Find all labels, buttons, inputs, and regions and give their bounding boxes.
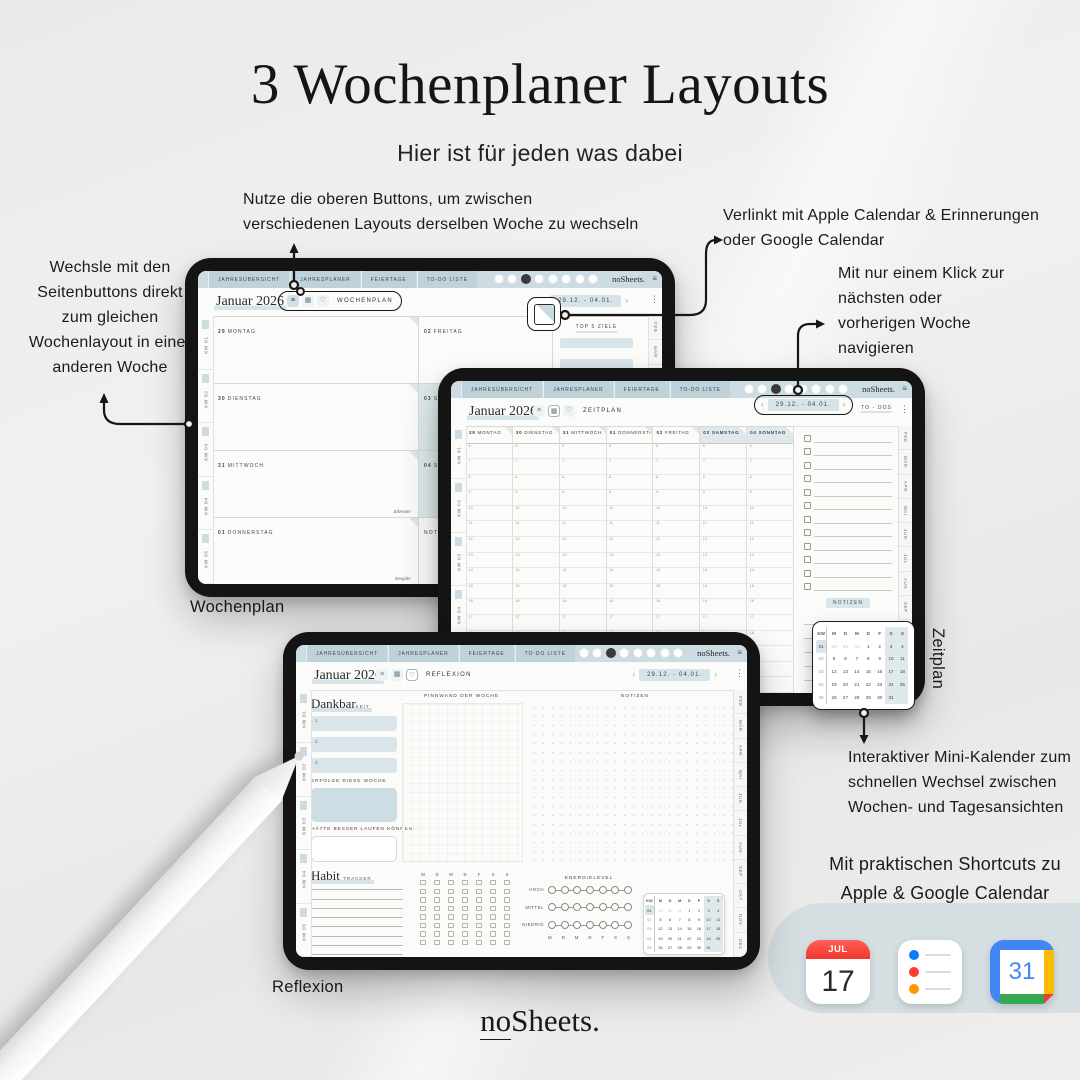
menu-icon[interactable]: ≡ (652, 274, 657, 283)
notes-dotted-area[interactable] (530, 703, 738, 867)
day-cell-mittwoch[interactable]: 31MITTWOCHSilvester (213, 451, 418, 518)
hour-slot[interactable]: 14 (747, 568, 793, 584)
month-title: Januar 2026 (312, 668, 384, 684)
habit-checkbox[interactable] (434, 931, 439, 936)
week-side-tab[interactable]: KW 01 (451, 426, 466, 479)
gratitude-entry-field[interactable]: 2 (311, 737, 397, 752)
hour-slot[interactable]: 10 (747, 506, 793, 522)
hour-slot[interactable]: 10 (653, 506, 699, 522)
hour-slot[interactable]: 12 (560, 537, 606, 553)
toolbar-button[interactable] (588, 274, 598, 284)
toolbar-button[interactable] (673, 648, 683, 658)
habit-checkbox[interactable] (476, 923, 481, 928)
gratitude-entry-field[interactable]: 3 (311, 758, 397, 773)
next-week-icon[interactable]: › (714, 669, 717, 681)
habit-checkbox[interactable] (448, 931, 453, 936)
mini-calendar-popup[interactable]: KWMDMDFSS0129303112340256789101103121314… (812, 621, 915, 710)
hour-slot[interactable]: 14 (466, 568, 512, 584)
checkbox-icon (804, 475, 811, 482)
habit-checkbox[interactable] (504, 897, 509, 902)
caption-zeitplan: Zeitplan (928, 628, 947, 689)
hour-slot[interactable]: 15 (653, 584, 699, 600)
hour-slot[interactable]: 9 (607, 490, 653, 506)
month-side-tab[interactable]: JUL (899, 547, 912, 571)
habit-checkbox[interactable] (490, 880, 495, 885)
habit-checkbox[interactable] (504, 914, 509, 919)
hour-slot[interactable]: 9 (700, 490, 746, 506)
grid-view-icon[interactable]: ▦ (391, 669, 403, 681)
hour-slot[interactable]: 9 (560, 490, 606, 506)
toolbar-button[interactable] (619, 648, 629, 658)
habit-checkbox[interactable] (490, 940, 495, 945)
toolbar-button[interactable] (811, 384, 821, 394)
hour-slot[interactable]: 14 (560, 568, 606, 584)
habit-checkbox[interactable] (462, 880, 467, 885)
energy-row[interactable]: NIEDRIG (518, 916, 632, 934)
menu-icon[interactable]: ≡ (902, 384, 907, 393)
month-side-tab[interactable]: MÄR (649, 340, 662, 364)
habit-checkbox[interactable] (490, 931, 495, 936)
prev-week-icon[interactable]: ‹ (632, 669, 635, 681)
toolbar-button[interactable] (660, 648, 670, 658)
habit-line[interactable] (311, 937, 403, 946)
menu-icon[interactable]: ≡ (737, 648, 742, 657)
hour-slot[interactable]: 13 (560, 553, 606, 569)
next-week-icon[interactable]: › (625, 295, 628, 307)
week-side-tab[interactable]: KW 05 (296, 904, 311, 957)
better-field[interactable] (311, 836, 397, 862)
hour-slot[interactable]: 7 (747, 459, 793, 475)
habit-checkbox[interactable] (504, 940, 509, 945)
habit-checkbox[interactable] (448, 889, 453, 894)
habit-checkbox[interactable] (448, 923, 453, 928)
hour-slot[interactable]: 16 (466, 599, 512, 615)
hour-slot[interactable]: 9 (653, 490, 699, 506)
hour-slot[interactable]: 9 (513, 490, 559, 506)
month-side-tab[interactable]: MAI (734, 763, 747, 787)
month-side-tab[interactable]: AUG (734, 836, 747, 860)
todo-item[interactable] (804, 510, 892, 524)
toolbar-button-active[interactable] (606, 648, 616, 658)
planner-tab[interactable]: TO-DO LISTE (670, 381, 730, 398)
toolbar-button[interactable] (646, 648, 656, 658)
annotation-week-nav: Mit nur einem Klick zur nächsten oder vo… (838, 262, 1068, 362)
habit-line[interactable] (311, 909, 403, 918)
habit-checkbox[interactable] (448, 897, 453, 902)
planner-tab[interactable]: JAHRESÜBERSICHT (306, 645, 387, 662)
annotation-shortcuts: Mit praktischen Shortcuts zu Apple & Goo… (815, 850, 1075, 908)
habit-checkbox[interactable] (462, 897, 467, 902)
habit-checkbox[interactable] (476, 889, 481, 894)
hour-slot[interactable]: 6 (747, 444, 793, 460)
habit-line[interactable] (311, 946, 403, 955)
habit-checkbox[interactable] (490, 889, 495, 894)
hour-slot[interactable]: 6 (653, 444, 699, 460)
month-side-tab[interactable]: JUN (734, 787, 747, 811)
hour-slot[interactable]: 7 (607, 459, 653, 475)
hour-slot[interactable]: 17 (747, 615, 793, 631)
todo-item[interactable] (804, 456, 892, 470)
hour-slot[interactable]: 7 (700, 459, 746, 475)
todo-item[interactable] (804, 483, 892, 497)
toolbar-button[interactable] (579, 648, 589, 658)
toolbar-button[interactable] (784, 384, 794, 394)
hour-slot[interactable]: 13 (466, 553, 512, 569)
holiday-label: Neujahr (395, 576, 411, 581)
month-side-tab[interactable]: DEZ (734, 933, 747, 957)
hour-slot[interactable]: 17 (653, 615, 699, 631)
month-side-tab[interactable]: NOV (734, 908, 747, 932)
hour-slot[interactable]: 6 (513, 444, 559, 460)
week-side-tab[interactable]: KW 03 (451, 533, 466, 586)
hour-slot[interactable]: 11 (607, 521, 653, 537)
habit-line[interactable] (311, 918, 403, 927)
toolbar-buttons (579, 648, 684, 658)
hour-slot[interactable]: 13 (513, 553, 559, 569)
month-side-tab[interactable]: APR (734, 739, 747, 763)
toolbar-button[interactable] (744, 384, 754, 394)
week-side-tab[interactable]: KW 04 (198, 477, 213, 531)
hour-slot[interactable]: 10 (560, 506, 606, 522)
habit-checkbox[interactable] (420, 880, 425, 885)
hour-slot[interactable]: 8 (513, 475, 559, 491)
week-side-tab[interactable]: KW 02 (198, 370, 213, 424)
month-side-tab[interactable]: FEB (734, 690, 747, 714)
habit-checkbox[interactable] (462, 940, 467, 945)
week-side-tab[interactable]: KW 05 (198, 530, 213, 584)
hour-slot[interactable]: 6 (466, 444, 512, 460)
habit-checkbox[interactable] (462, 906, 467, 911)
hour-slot[interactable]: 10 (513, 506, 559, 522)
hour-slot[interactable]: 11 (560, 521, 606, 537)
toolbar-button-active[interactable] (771, 384, 781, 394)
week-navigation-annotated: ‹ 29.12. - 04.01. › (754, 395, 853, 415)
hour-slot[interactable]: 6 (560, 444, 606, 460)
todo-item[interactable] (804, 564, 892, 578)
day-cell-donnerstag[interactable]: 01DONNERSTAGNeujahr (213, 518, 418, 584)
month-side-tab[interactable]: AUG (899, 572, 912, 596)
habit-checkbox[interactable] (434, 897, 439, 902)
hour-slot[interactable]: 8 (747, 475, 793, 491)
list-view-icon[interactable]: ≡ (533, 405, 545, 417)
planner-tab[interactable]: FEIERTAGE (361, 271, 416, 288)
month-side-tab[interactable]: JUN (899, 523, 912, 547)
hour-slot[interactable]: 12 (607, 537, 653, 553)
week-side-tab[interactable]: KW 01 (296, 690, 311, 743)
habit-checkbox[interactable] (476, 940, 481, 945)
todo-item[interactable] (804, 429, 892, 443)
habit-checkbox[interactable] (504, 923, 509, 928)
energy-row[interactable]: HOCH (518, 881, 632, 899)
hour-slot[interactable]: 10 (466, 506, 512, 522)
hour-slot[interactable]: 15 (560, 584, 606, 600)
heart-view-icon[interactable]: ♡ (563, 405, 575, 417)
month-side-tab[interactable]: MÄR (899, 450, 912, 474)
hour-slot[interactable]: 11 (747, 521, 793, 537)
apple-calendar-icon[interactable]: JUL 17 (806, 940, 870, 1004)
month-side-tab[interactable]: APR (899, 475, 912, 499)
month-side-tab[interactable]: FEB (649, 316, 662, 340)
hour-slot[interactable]: 9 (747, 490, 793, 506)
todo-item[interactable] (804, 537, 892, 551)
toolbar-button[interactable] (825, 384, 835, 394)
habit-checkbox[interactable] (420, 914, 425, 919)
hour-slot[interactable]: 17 (607, 615, 653, 631)
habit-checkbox[interactable] (504, 880, 509, 885)
grid-view-icon[interactable]: ▦ (548, 405, 560, 417)
week-side-tab[interactable]: KW 03 (296, 797, 311, 850)
toolbar-button[interactable] (633, 648, 643, 658)
month-side-tab[interactable]: SEP (734, 860, 747, 884)
view-label: ZEITPLAN (583, 408, 622, 414)
habit-checkbox[interactable] (504, 906, 509, 911)
list-view-icon[interactable]: ≡ (287, 295, 299, 307)
mini-calendar[interactable]: KWMDMDFSS0129303112340256789101103121314… (643, 893, 725, 955)
wins-field[interactable] (311, 788, 397, 822)
hour-slot[interactable]: 11 (653, 521, 699, 537)
toolbar-button-active[interactable] (521, 274, 531, 284)
toolbar-buttons (744, 384, 849, 394)
toolbar-button[interactable] (575, 274, 585, 284)
hour-slot[interactable]: 7 (560, 459, 606, 475)
habit-checkbox[interactable] (504, 889, 509, 894)
hour-slot[interactable]: 7 (513, 459, 559, 475)
caption-reflexion: Reflexion (272, 978, 344, 997)
hour-slot[interactable]: 14 (607, 568, 653, 584)
month-side-tab[interactable]: MÄR (734, 714, 747, 738)
energy-weekday-letters: MDMDFSS (546, 934, 632, 940)
habit-checkbox[interactable] (462, 914, 467, 919)
todo-item[interactable] (804, 551, 892, 565)
hour-slot[interactable]: 13 (747, 553, 793, 569)
hour-slot[interactable]: 16 (653, 599, 699, 615)
hour-slot[interactable]: 9 (466, 490, 512, 506)
habit-checkbox[interactable] (448, 914, 453, 919)
month-side-tab[interactable]: JUL (734, 811, 747, 835)
month-side-tab[interactable]: FEB (899, 426, 912, 450)
planner-tab[interactable]: JAHRESÜBERSICHT (208, 271, 289, 288)
toolbar-button[interactable] (548, 274, 558, 284)
planner-tab[interactable]: FEIERTAGE (459, 645, 514, 662)
hour-slot[interactable]: 15 (607, 584, 653, 600)
shortcuts-pill: JUL 17 31 (768, 903, 1080, 1013)
toolbar-button[interactable] (838, 384, 848, 394)
month-side-tab[interactable]: SEP (899, 596, 912, 620)
grid-view-icon[interactable]: ▦ (302, 295, 314, 307)
gratitude-title: DankbarKEIT (311, 696, 372, 712)
view-switcher: ≡ ▦ ♡ ZEITPLAN (533, 405, 622, 417)
checkbox-icon (804, 570, 811, 577)
habit-checkbox[interactable] (420, 940, 425, 945)
month-side-tab[interactable]: OKT (734, 884, 747, 908)
hour-slot[interactable]: 17 (466, 615, 512, 631)
hour-slot[interactable]: 17 (513, 615, 559, 631)
hour-slot[interactable]: 10 (607, 506, 653, 522)
list-view-icon[interactable]: ≡ (376, 669, 388, 681)
hour-slot[interactable]: 16 (607, 599, 653, 615)
weekday-column-left: 29MONTAG 30DIENSTAG 31MITTWOCHSilvester … (213, 317, 419, 584)
planner-tab[interactable]: TO-DO LISTE (515, 645, 575, 662)
hour-slot[interactable]: 14 (513, 568, 559, 584)
planner-brand: noSheets. (862, 384, 895, 394)
hour-slot[interactable]: 16 (560, 599, 606, 615)
habit-checkbox[interactable] (434, 906, 439, 911)
planner-tab[interactable]: JAHRESPLANER (290, 271, 360, 288)
todo-item[interactable] (804, 470, 892, 484)
energy-row[interactable]: MITTEL (518, 899, 632, 917)
hour-slot[interactable]: 11 (700, 521, 746, 537)
habit-checkbox[interactable] (434, 914, 439, 919)
checkbox-icon (804, 489, 811, 496)
hour-slot[interactable]: 15 (700, 584, 746, 600)
todo-item[interactable] (804, 443, 892, 457)
toolbar-button[interactable] (534, 274, 544, 284)
heart-view-icon[interactable]: ♡ (317, 295, 329, 307)
hour-slot[interactable]: 8 (700, 475, 746, 491)
tablet-reflexion: JAHRESÜBERSICHTJAHRESPLANERFEIERTAGETO-D… (283, 632, 760, 970)
habit-checkbox[interactable] (504, 931, 509, 936)
todo-item[interactable] (804, 524, 892, 538)
toolbar-button[interactable] (757, 384, 767, 394)
habit-checkbox[interactable] (434, 923, 439, 928)
calendar-link-icon[interactable] (534, 304, 555, 325)
toolbar-button[interactable] (507, 274, 517, 284)
habit-checkbox[interactable] (462, 889, 467, 894)
energy-level-section: ENERGIELEVEL HOCH MITTEL NIEDRIG (518, 876, 632, 940)
hour-slot[interactable]: 12 (466, 537, 512, 553)
more-icon[interactable]: ⋮ (900, 404, 909, 415)
planner-tab[interactable]: TO-DO LISTE (417, 271, 477, 288)
habit-checkbox[interactable] (476, 880, 481, 885)
hour-slot[interactable]: 13 (607, 553, 653, 569)
prev-week-icon[interactable]: ‹ (761, 399, 764, 411)
hour-slot[interactable]: 8 (466, 475, 512, 491)
hour-slot[interactable]: 8 (560, 475, 606, 491)
hour-slot[interactable]: 8 (607, 475, 653, 491)
goals-label: TOP 5 ZIELE (576, 324, 618, 333)
habit-checkbox[interactable] (420, 931, 425, 936)
month-side-tab[interactable]: MAI (899, 499, 912, 523)
notes-label: NOTIZEN (826, 598, 870, 608)
habit-checkbox[interactable] (490, 923, 495, 928)
hour-slot[interactable]: 15 (747, 584, 793, 600)
week-side-tab[interactable]: KW 02 (451, 479, 466, 532)
habit-checkbox[interactable] (434, 940, 439, 945)
hour-slot[interactable]: 11 (513, 521, 559, 537)
habit-checkbox[interactable] (434, 889, 439, 894)
poster-canvas: 3 Wochenplaner Layouts Hier ist für jede… (0, 0, 1080, 1080)
hour-slot[interactable]: 6 (700, 444, 746, 460)
habit-line[interactable] (311, 927, 403, 936)
day-cell-montag[interactable]: 29MONTAG (213, 317, 418, 384)
hour-slot[interactable]: 13 (653, 553, 699, 569)
more-icon[interactable]: ⋮ (650, 294, 659, 305)
hour-slot[interactable]: 16 (700, 599, 746, 615)
hour-slot[interactable]: 12 (700, 537, 746, 553)
habit-checkbox[interactable] (420, 923, 425, 928)
habit-checkbox[interactable] (420, 889, 425, 894)
planner-tab[interactable]: FEIERTAGE (614, 381, 669, 398)
pinboard-grid[interactable] (402, 703, 523, 862)
week-side-tab[interactable]: KW 03 (198, 423, 213, 477)
habit-checkbox[interactable] (448, 940, 453, 945)
hour-slot[interactable]: 10 (700, 506, 746, 522)
habit-checkbox[interactable] (490, 897, 495, 902)
hour-slot[interactable]: 14 (700, 568, 746, 584)
toolbar-button[interactable] (494, 274, 504, 284)
google-calendar-icon[interactable]: 31 (990, 940, 1054, 1004)
gratitude-entries: 123 (311, 716, 397, 773)
hour-slot[interactable]: 12 (747, 537, 793, 553)
habit-line[interactable] (311, 900, 403, 909)
hour-slot[interactable]: 12 (513, 537, 559, 553)
habit-checkbox[interactable] (476, 906, 481, 911)
checkbox-icon (804, 583, 811, 590)
planner-tab[interactable]: JAHRESPLANER (388, 645, 458, 662)
hour-slot[interactable]: 17 (560, 615, 606, 631)
habit-checkbox[interactable] (448, 906, 453, 911)
hour-slot[interactable]: 15 (466, 584, 512, 600)
hour-slot[interactable]: 14 (653, 568, 699, 584)
hour-slot[interactable]: 15 (513, 584, 559, 600)
habit-line[interactable] (311, 890, 403, 899)
habit-checkbox[interactable] (490, 914, 495, 919)
day-cell-dienstag[interactable]: 30DIENSTAG (213, 384, 418, 451)
toolbar-button[interactable] (798, 384, 808, 394)
habit-checkbox[interactable] (476, 897, 481, 902)
hour-slot[interactable]: 17 (700, 615, 746, 631)
month-side-tabs: FEBMÄRAPRMAIJUNJULAUGSEPOKTNOVDEZ (733, 690, 747, 957)
hour-slot[interactable]: 13 (700, 553, 746, 569)
date-range[interactable]: 29.12. - 04.01. (639, 669, 710, 681)
habit-checkbox[interactable] (420, 906, 425, 911)
date-range[interactable]: 29.12. - 04.01. (768, 399, 839, 411)
todo-item[interactable] (804, 578, 892, 592)
habit-checkbox[interactable] (434, 880, 439, 885)
habit-checkbox[interactable] (490, 906, 495, 911)
hour-slot[interactable]: 6 (607, 444, 653, 460)
hour-slot[interactable]: 7 (653, 459, 699, 475)
planner-tab[interactable]: JAHRESPLANER (543, 381, 613, 398)
hour-slot[interactable]: 7 (466, 459, 512, 475)
toolbar-button[interactable] (561, 274, 571, 284)
more-icon[interactable]: ⋮ (735, 668, 744, 679)
hour-slot[interactable]: 12 (653, 537, 699, 553)
hour-slot[interactable]: 16 (747, 599, 793, 615)
planner-tab[interactable]: JAHRESÜBERSICHT (461, 381, 542, 398)
habit-checkbox[interactable] (420, 897, 425, 902)
week-side-tab[interactable]: KW 01 (198, 316, 213, 370)
hour-slot[interactable]: 16 (513, 599, 559, 615)
todos-column-label: TO - DOS (861, 405, 892, 413)
apple-reminders-icon[interactable] (898, 940, 962, 1004)
heart-view-icon[interactable]: ♡ (406, 669, 418, 681)
habit-checkbox[interactable] (476, 914, 481, 919)
next-week-icon[interactable]: › (843, 399, 846, 411)
hour-slot[interactable]: 8 (653, 475, 699, 491)
habit-checkbox[interactable] (448, 880, 453, 885)
goal-bar[interactable] (560, 338, 633, 348)
todo-item[interactable] (804, 497, 892, 511)
toolbar-button[interactable] (592, 648, 602, 658)
habit-line[interactable] (311, 881, 403, 890)
week-side-tab[interactable]: KW 04 (296, 850, 311, 903)
habit-checkbox[interactable] (476, 931, 481, 936)
gratitude-entry-field[interactable]: 1 (311, 716, 397, 731)
habit-checkbox[interactable] (462, 923, 467, 928)
habit-checkbox[interactable] (462, 931, 467, 936)
hour-slot[interactable]: 11 (466, 521, 512, 537)
